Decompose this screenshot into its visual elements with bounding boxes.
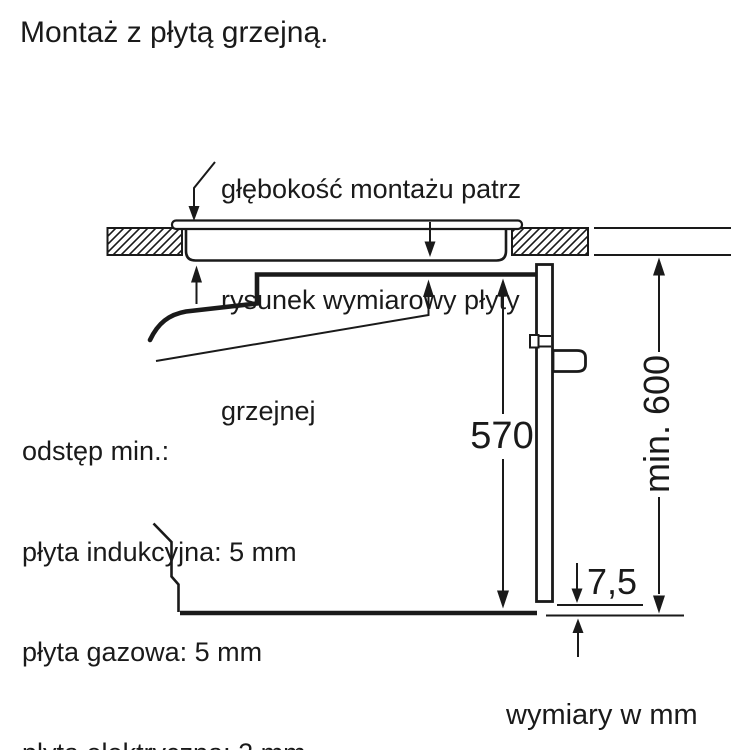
door-notch-tab — [530, 335, 539, 348]
arrow-up-glyph — [573, 619, 584, 634]
arrow-up-glyph — [653, 258, 665, 276]
door-handle — [553, 351, 586, 372]
clearance-note-line2: płyta indukcyjna: 5 mm — [22, 536, 306, 570]
arrow-down-glyph — [497, 591, 509, 609]
hob-depth-leader — [189, 162, 216, 221]
clearance-note: odstęp min.: płyta indukcyjna: 5 mm płyt… — [22, 368, 306, 750]
door-front — [537, 265, 553, 602]
dim-570-label: 570 — [466, 415, 538, 458]
arrow-up-glyph — [191, 266, 202, 283]
clearance-note-line3: płyta gazowa: 5 mm — [22, 636, 306, 670]
worktop-left-block — [108, 228, 183, 255]
dim-600-label: min. 600 — [637, 344, 677, 504]
arrow-down-glyph — [653, 596, 665, 614]
arrow-down-glyph — [572, 589, 583, 604]
installation-page: Montaż z płytą grzejną. głębokość montaż… — [0, 0, 750, 750]
worktop-right-block — [512, 228, 588, 255]
dim-75-label: 7,5 — [587, 561, 637, 603]
page-title: Montaż z płytą grzejną. — [20, 16, 328, 50]
units-note: wymiary w mm — [506, 699, 698, 732]
hob-depth-note-line1: głębokość montażu patrz — [221, 171, 521, 208]
clearance-note-line4: płyta elektryczna: 2 mm — [22, 737, 306, 750]
hob-depth-leader-line — [194, 162, 215, 208]
arrow-down-glyph — [189, 206, 200, 221]
clearance-note-line1: odstęp min.: — [22, 435, 306, 469]
hob-depth-note-line2: rysunek wymiarowy płyty — [221, 282, 521, 319]
oven-door — [530, 265, 586, 602]
